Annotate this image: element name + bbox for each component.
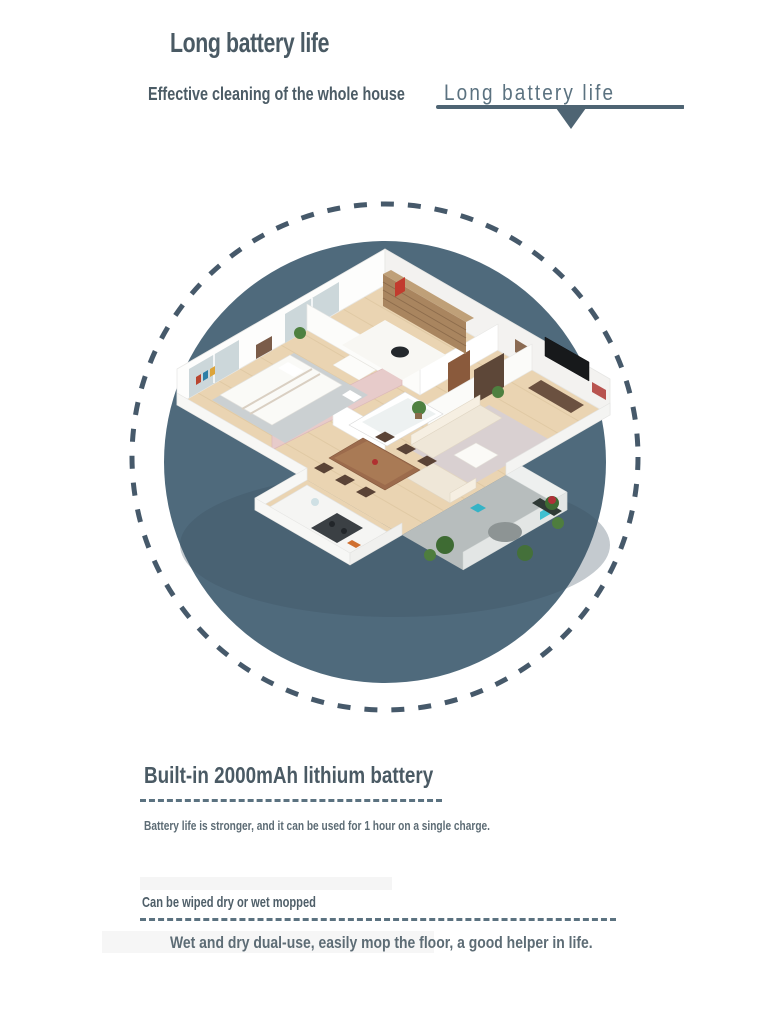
mop-section-heading: Can be wiped dry or wet mopped [142,894,377,911]
mop-section-dashed-divider [140,918,616,921]
mop-section-description: Wet and dry dual-use, easily mop the flo… [170,933,685,953]
faint-background-band [140,877,392,890]
product-page: Long battery life Effective cleaning of … [0,0,768,1024]
battery-section-heading: Built-in 2000mAh lithium battery [144,762,497,789]
battery-section-dashed-divider [140,799,442,802]
battery-section-description: Battery life is stronger, and it can be … [144,818,588,833]
hero-illustration [0,0,768,760]
